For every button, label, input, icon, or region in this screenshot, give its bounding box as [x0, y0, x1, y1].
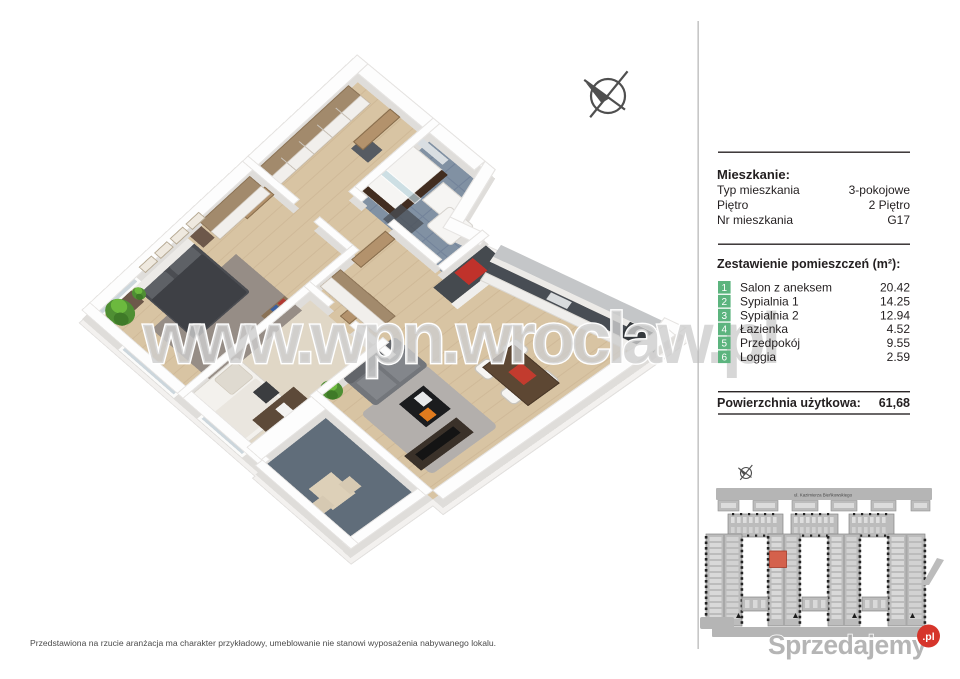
svg-text:Salon z aneksem: Salon z aneksem [740, 281, 832, 295]
svg-text:Zestawienie pomieszczeń (m²):: Zestawienie pomieszczeń (m²): [717, 257, 900, 271]
svg-text:Sypialnia 1: Sypialnia 1 [740, 294, 799, 308]
svg-text:Nr mieszkania: Nr mieszkania [717, 213, 793, 227]
svg-text:61,68: 61,68 [879, 396, 910, 410]
svg-text:4.52: 4.52 [887, 322, 911, 336]
svg-text:Sprzedajemy: Sprzedajemy [768, 630, 927, 660]
svg-text:Loggia: Loggia [740, 350, 776, 364]
svg-text:Łazienka: Łazienka [740, 322, 788, 336]
svg-text:2: 2 [722, 297, 728, 308]
svg-text:3: 3 [722, 311, 728, 322]
svg-text:Mieszkanie:: Mieszkanie: [717, 167, 790, 182]
svg-text:.pl: .pl [922, 631, 934, 643]
svg-text:G17: G17 [887, 213, 910, 227]
svg-text:Typ mieszkania: Typ mieszkania [717, 183, 800, 197]
svg-text:www.wpn.wroclaw.pl: www.wpn.wroclaw.pl [142, 299, 777, 379]
svg-text:1: 1 [722, 283, 728, 294]
svg-text:9.55: 9.55 [887, 336, 911, 350]
svg-text:12.94: 12.94 [880, 308, 910, 322]
svg-text:2 Piętro: 2 Piętro [869, 198, 911, 212]
svg-text:Przedpokój: Przedpokój [740, 336, 800, 350]
svg-text:3-pokojowe: 3-pokojowe [849, 183, 911, 197]
svg-text:5: 5 [722, 339, 728, 350]
svg-text:6: 6 [722, 353, 728, 364]
svg-text:Powierzchnia użytkowa:: Powierzchnia użytkowa: [717, 396, 861, 410]
svg-text:Sypialnia 2: Sypialnia 2 [740, 308, 799, 322]
svg-text:14.25: 14.25 [880, 294, 910, 308]
svg-text:Piętro: Piętro [717, 198, 749, 212]
svg-text:2.59: 2.59 [887, 350, 911, 364]
svg-text:ul. Kazimierza Bieńkowskiego: ul. Kazimierza Bieńkowskiego [794, 492, 853, 497]
svg-text:20.42: 20.42 [880, 281, 910, 295]
svg-text:4: 4 [722, 325, 728, 336]
svg-text:Przedstawiona na rzucie aranża: Przedstawiona na rzucie aranżacja ma cha… [30, 638, 496, 648]
